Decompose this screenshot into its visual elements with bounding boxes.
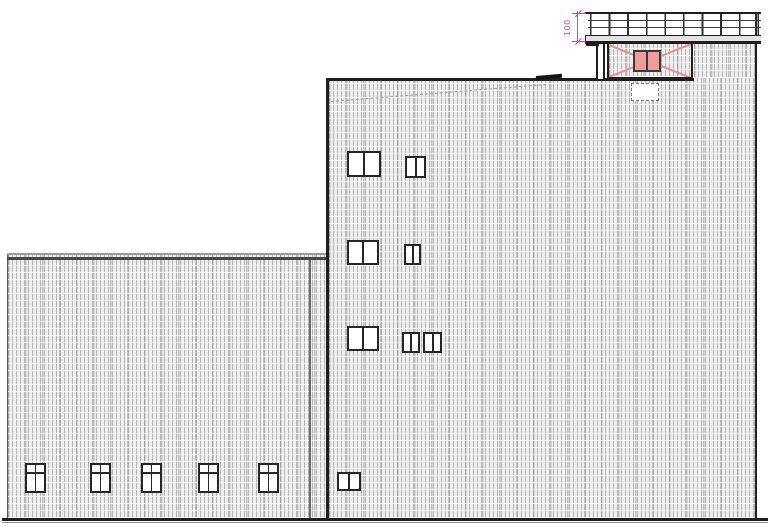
- tall-building-window: [347, 151, 381, 177]
- dimension-label: 100: [563, 15, 574, 41]
- railing-posts: [590, 12, 760, 36]
- left-building-corner-line: [309, 260, 311, 518]
- window-mullion: [412, 246, 414, 263]
- window-mullion: [363, 153, 365, 175]
- roof-support-column: [596, 43, 605, 79]
- window-mullion: [362, 328, 364, 349]
- window-mullion: [100, 465, 102, 491]
- tall-building-window: [423, 332, 442, 353]
- roof-railing: [585, 11, 761, 36]
- penthouse-machine-unit: [633, 50, 661, 72]
- tall-building-raised-section: [694, 43, 757, 78]
- left-building-window: [25, 463, 46, 493]
- window-transom: [92, 472, 109, 474]
- railing-mid-rail: [588, 27, 761, 28]
- left-building-window: [141, 463, 162, 493]
- window-mullion: [432, 334, 434, 351]
- tall-building-window: [347, 326, 379, 351]
- railing-top-rail: [585, 12, 761, 15]
- window-transom: [27, 472, 44, 474]
- window-mullion: [415, 158, 417, 176]
- ground-line: [2, 518, 768, 521]
- window-transom: [260, 472, 277, 474]
- railing-mid-rail: [588, 20, 761, 21]
- tall-building-window: [405, 156, 426, 178]
- tall-building-window: [347, 240, 379, 265]
- window-mullion: [151, 465, 153, 491]
- window-mullion: [208, 465, 210, 491]
- left-building-parapet-line-outer: [7, 253, 326, 255]
- window-transom: [143, 472, 160, 474]
- window-mullion: [410, 334, 412, 351]
- left-building-parapet-line-inner: [7, 257, 326, 260]
- window-mullion: [348, 474, 350, 489]
- ground-shadow-line: [2, 522, 768, 523]
- left-building-facade: [7, 254, 327, 518]
- left-building-window: [90, 463, 111, 493]
- tall-building-window: [404, 244, 421, 265]
- dashed-roof-opening: [631, 83, 659, 101]
- penthouse: [607, 42, 693, 79]
- window-mullion: [268, 465, 270, 491]
- railing-end-post: [755, 12, 757, 36]
- window-mullion: [362, 242, 364, 263]
- tall-building-window: [402, 332, 420, 353]
- window-mullion: [35, 465, 37, 491]
- tall-building-facade: [326, 78, 757, 518]
- canopy-slab-lip: [586, 43, 599, 46]
- tall-building-window: [337, 472, 361, 491]
- roof-canopy-slab: [585, 35, 761, 44]
- elevation-drawing-canvas: 100: [0, 0, 768, 526]
- left-building-window: [198, 463, 219, 493]
- window-transom: [200, 472, 217, 474]
- left-building-window: [258, 463, 279, 493]
- machine-unit-divider: [646, 52, 648, 70]
